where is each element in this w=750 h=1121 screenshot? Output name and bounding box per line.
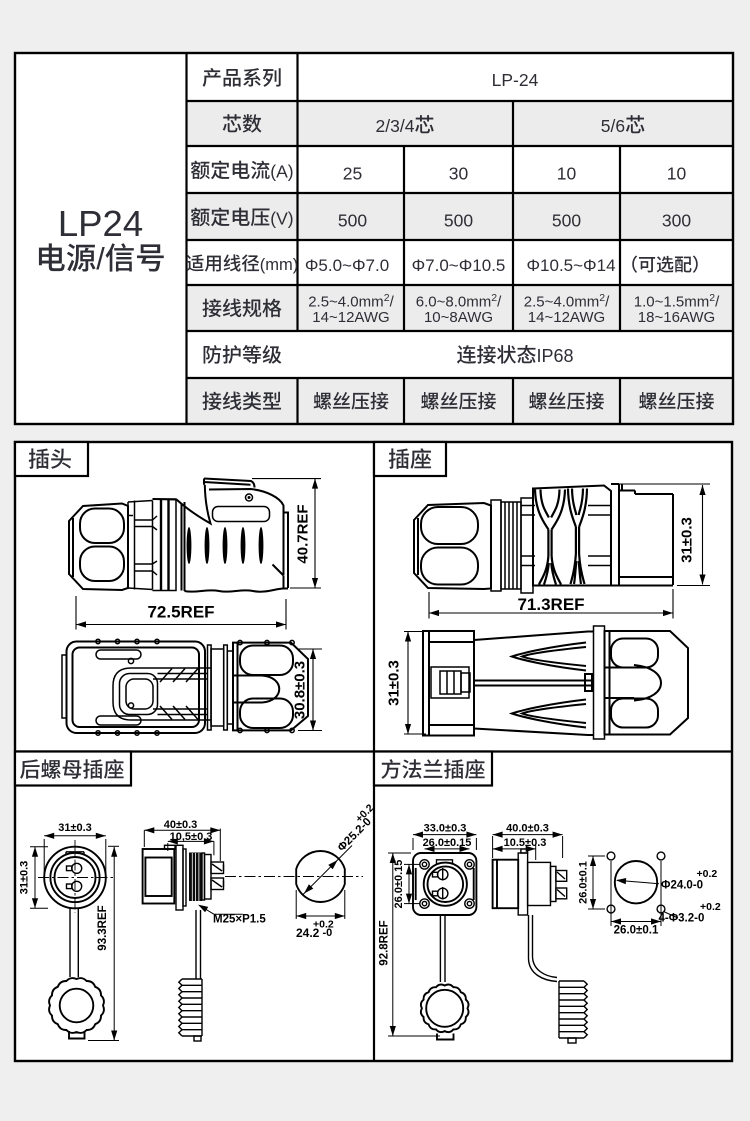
svg-text:31±0.3: 31±0.3 bbox=[679, 517, 696, 563]
svg-text:2.5~4.0mm: 2.5~4.0mm bbox=[308, 294, 383, 311]
svg-text:1.0~1.5mm: 1.0~1.5mm bbox=[634, 294, 709, 311]
svg-text:LP24: LP24 bbox=[58, 203, 143, 244]
svg-text:300: 300 bbox=[662, 211, 691, 231]
svg-text:24.2: 24.2 bbox=[296, 926, 320, 940]
svg-text:10.5±0.3: 10.5±0.3 bbox=[504, 837, 547, 849]
svg-text:40.7REF: 40.7REF bbox=[295, 504, 312, 563]
svg-text:92.8REF: 92.8REF bbox=[378, 920, 390, 965]
svg-text:31±0.3: 31±0.3 bbox=[58, 822, 92, 834]
svg-text:10,5±0.3: 10,5±0.3 bbox=[170, 831, 213, 843]
svg-text:30.8±0.3: 30.8±0.3 bbox=[292, 661, 309, 719]
svg-text:(A): (A) bbox=[270, 162, 293, 182]
svg-text:40.0±0.3: 40.0±0.3 bbox=[506, 823, 549, 835]
svg-text:5/6: 5/6 bbox=[601, 116, 625, 136]
svg-text:31±0.3: 31±0.3 bbox=[19, 861, 31, 895]
svg-text:10: 10 bbox=[557, 164, 577, 184]
svg-text:30: 30 bbox=[449, 164, 469, 184]
svg-text:4-Φ3.2-0: 4-Φ3.2-0 bbox=[659, 913, 705, 925]
svg-text:(mm): (mm) bbox=[260, 256, 298, 274]
svg-text:IP68: IP68 bbox=[537, 346, 574, 366]
svg-text:Φ7.0~Φ10.5: Φ7.0~Φ10.5 bbox=[412, 256, 506, 275]
svg-text:25: 25 bbox=[343, 164, 362, 184]
svg-text:72.5REF: 72.5REF bbox=[147, 603, 214, 622]
svg-text:-0: -0 bbox=[323, 927, 333, 939]
svg-text:Φ24.0-0: Φ24.0-0 bbox=[661, 880, 703, 892]
svg-text:500: 500 bbox=[338, 211, 367, 231]
svg-text:+0.2: +0.2 bbox=[700, 901, 721, 913]
svg-text:2/3/4: 2/3/4 bbox=[376, 116, 415, 136]
svg-text:500: 500 bbox=[444, 211, 473, 231]
svg-text:+0.2: +0.2 bbox=[697, 868, 718, 880]
svg-text:71.3REF: 71.3REF bbox=[517, 595, 584, 614]
svg-text:26.0±0.1: 26.0±0.1 bbox=[614, 925, 659, 937]
svg-text:Φ10.5~Φ14: Φ10.5~Φ14 bbox=[526, 256, 615, 275]
svg-text:26.0±0.15: 26.0±0.15 bbox=[423, 837, 472, 849]
svg-text:10: 10 bbox=[667, 164, 687, 184]
svg-text:26.0±0.15: 26.0±0.15 bbox=[393, 860, 405, 909]
svg-text:2.5~4.0mm: 2.5~4.0mm bbox=[524, 294, 599, 311]
svg-text:18~16AWG: 18~16AWG bbox=[638, 309, 715, 326]
svg-text:14~12AWG: 14~12AWG bbox=[312, 309, 389, 326]
svg-text:/: / bbox=[96, 242, 105, 276]
svg-text:500: 500 bbox=[552, 211, 581, 231]
svg-text:Φ5.0~Φ7.0: Φ5.0~Φ7.0 bbox=[305, 256, 389, 275]
svg-text:LP-24: LP-24 bbox=[492, 70, 539, 90]
svg-text:33.0±0.3: 33.0±0.3 bbox=[424, 823, 467, 835]
svg-text:40±0.3: 40±0.3 bbox=[164, 819, 198, 831]
svg-text:26.0±0.1: 26.0±0.1 bbox=[578, 861, 590, 904]
svg-text:10~8AWG: 10~8AWG bbox=[424, 309, 493, 326]
svg-text:14~12AWG: 14~12AWG bbox=[528, 309, 605, 326]
svg-text:M25×P1.5: M25×P1.5 bbox=[213, 914, 266, 926]
svg-text:31±0.3: 31±0.3 bbox=[386, 660, 403, 706]
svg-text:6.0~8.0mm: 6.0~8.0mm bbox=[416, 294, 491, 311]
svg-text:(V): (V) bbox=[270, 209, 293, 229]
svg-text:93.3REF: 93.3REF bbox=[97, 905, 109, 950]
